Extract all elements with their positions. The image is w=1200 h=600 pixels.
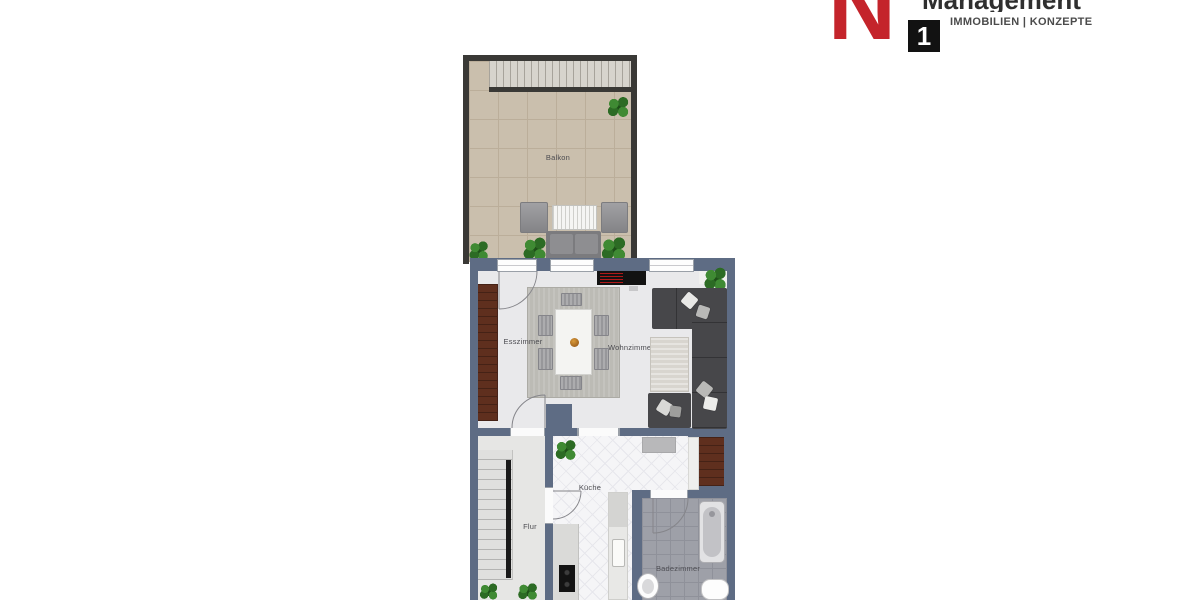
room-label-balkon: Balkon: [518, 152, 598, 164]
plant-icon: [555, 439, 577, 461]
logo-letter-n: N: [831, 0, 907, 55]
bathtub-drain: [709, 511, 715, 517]
kitchen-counter-left: [553, 524, 579, 600]
kitchen-mat: [642, 437, 676, 453]
bathroom-sink: [637, 573, 659, 599]
sideboard: [478, 284, 498, 421]
bathroom-door: [650, 490, 688, 498]
kitchen-counter-right: [608, 492, 628, 600]
counter-appliance: [609, 493, 627, 527]
door-threshold: [510, 428, 545, 436]
kitchen-counter-strip: [688, 437, 699, 490]
balcony-canopy-slats: [489, 61, 631, 92]
open-passage-threshold: [577, 428, 620, 436]
balcony-armchair-right: [601, 202, 628, 233]
stair-railing: [506, 460, 511, 578]
dining-chair: [538, 348, 553, 370]
floorplan-page: N 1 Management IMMOBILIEN | KONZEPTE Bal…: [0, 0, 1200, 600]
pillow: [669, 405, 681, 417]
plant-icon: [517, 583, 539, 600]
tv-screen: [600, 273, 623, 283]
dining-chair: [594, 315, 609, 336]
balcony-door-window: [497, 259, 537, 272]
armchair: [648, 393, 691, 428]
kitchen-cabinet: [699, 437, 724, 486]
dining-chair: [561, 293, 582, 306]
logo-number-badge: 1: [905, 17, 943, 55]
dining-chair: [560, 376, 582, 390]
toilet: [701, 579, 729, 600]
wall-pillar: [546, 404, 572, 436]
pillow: [703, 396, 718, 411]
logo-subtitle: IMMOBILIEN | KONZEPTE: [950, 16, 1110, 28]
bathtub: [699, 501, 725, 563]
dining-table: [555, 309, 592, 375]
cooktop: [559, 565, 575, 592]
sofa-cushion: [575, 234, 598, 254]
plant-icon: [607, 96, 630, 118]
window: [550, 259, 594, 272]
sink-basin: [642, 579, 654, 594]
living-rug: [650, 337, 689, 392]
window: [649, 259, 694, 272]
dining-chair: [538, 315, 553, 336]
room-label-esszimmer: Esszimmer: [488, 336, 558, 348]
plant-icon: [479, 583, 499, 600]
table-centerpiece: [570, 338, 579, 347]
hall-kitchen-door: [545, 487, 553, 524]
tv-sideboard: [597, 271, 646, 285]
kitchen-sink: [612, 539, 625, 567]
media-remote: [629, 286, 638, 291]
balcony-armchair-left: [520, 202, 548, 233]
sofa-cushion: [550, 234, 573, 254]
logo-title: Management: [922, 0, 1102, 12]
balcony-table: [552, 205, 597, 230]
